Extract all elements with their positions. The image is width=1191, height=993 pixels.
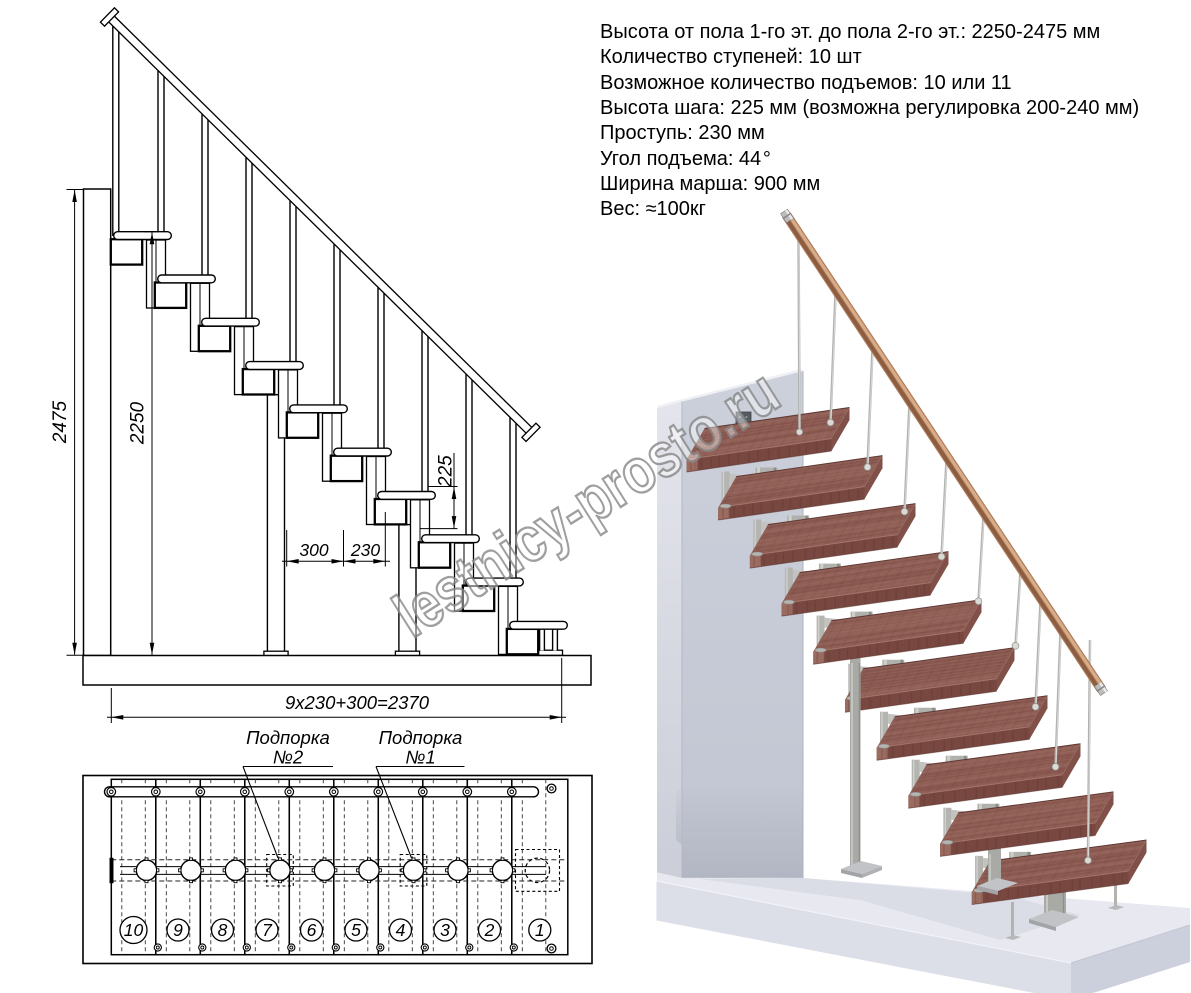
- svg-text:1: 1: [535, 920, 545, 940]
- svg-text:10: 10: [124, 920, 144, 940]
- svg-text:8: 8: [218, 920, 228, 940]
- svg-text:Подпорка: Подпорка: [246, 727, 330, 748]
- svg-text:6: 6: [307, 920, 317, 940]
- svg-text:№2: №2: [273, 747, 304, 768]
- svg-text:225: 225: [436, 455, 457, 488]
- svg-text:3: 3: [440, 920, 450, 940]
- svg-text:7: 7: [262, 920, 273, 940]
- svg-text:4: 4: [396, 920, 406, 940]
- svg-text:300: 300: [299, 540, 328, 560]
- svg-text:9: 9: [173, 920, 183, 940]
- svg-text:230: 230: [350, 540, 380, 560]
- svg-text:9x230+300=2370: 9x230+300=2370: [285, 692, 430, 713]
- svg-text:Подпорка: Подпорка: [379, 727, 463, 748]
- svg-text:2: 2: [484, 920, 495, 940]
- svg-text:№1: №1: [405, 747, 435, 768]
- svg-text:2250: 2250: [128, 401, 149, 445]
- svg-text:5: 5: [351, 920, 361, 940]
- svg-text:2475: 2475: [50, 400, 71, 444]
